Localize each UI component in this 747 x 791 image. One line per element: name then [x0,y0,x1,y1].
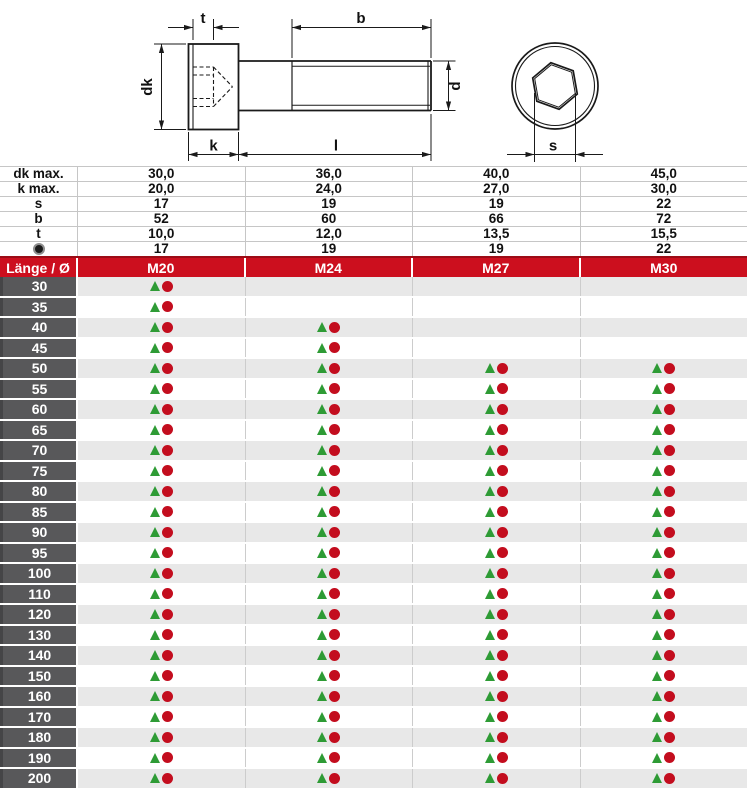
availability-cell [581,687,747,706]
spec-value: 19 [246,242,414,256]
stock-circle-icon [329,609,340,620]
availability-markers [317,568,340,579]
spec-value: 52 [78,212,246,226]
availability-markers [150,711,173,722]
table-row: 90 [0,523,747,542]
availability-cell [413,523,581,542]
availability-cell [78,728,246,747]
available-triangle-icon [150,732,160,742]
available-triangle-icon [652,363,662,373]
availability-markers [485,670,508,681]
spec-value: 19 [246,197,414,211]
available-triangle-icon [150,630,160,640]
availability-cell [581,605,747,624]
availability-markers [652,547,675,558]
availability-markers [150,322,173,333]
availability-markers [652,383,675,394]
stock-circle-icon [329,711,340,722]
availability-markers [150,629,173,640]
stock-circle-icon [664,691,675,702]
availability-markers [150,404,173,415]
availability-markers [317,547,340,558]
availability-markers [317,609,340,620]
available-triangle-icon [150,650,160,660]
stock-circle-icon [497,609,508,620]
availability-markers [485,363,508,374]
available-triangle-icon [317,384,327,394]
stock-circle-icon [497,547,508,558]
length-cell: 110 [0,585,78,604]
availability-cell [413,687,581,706]
stock-circle-icon [664,527,675,538]
stock-circle-icon [664,486,675,497]
table-row: 35 [0,298,747,317]
table-row: 45 [0,339,747,358]
table-row: 80 [0,482,747,501]
availability-markers [317,752,340,763]
available-triangle-icon [652,609,662,619]
availability-cell [581,359,747,378]
availability-markers [652,609,675,620]
availability-cell [78,318,246,337]
available-triangle-icon [652,466,662,476]
availability-markers [485,506,508,517]
availability-cell [581,298,747,317]
availability-cell [581,749,747,768]
table-row: 110 [0,585,747,604]
availability-markers [485,404,508,415]
available-triangle-icon [317,425,327,435]
availability-cell [413,339,581,358]
hex-socket-outline [533,63,578,110]
stock-circle-icon [664,383,675,394]
stock-circle-icon [329,773,340,784]
availability-markers [317,732,340,743]
availability-cell [581,462,747,481]
stock-circle-icon [329,363,340,374]
availability-markers [317,650,340,661]
availability-cell [78,523,246,542]
available-triangle-icon [317,609,327,619]
availability-markers [652,486,675,497]
spec-value: 19 [413,242,581,256]
stock-circle-icon [162,506,173,517]
stock-circle-icon [329,732,340,743]
stock-circle-icon [664,732,675,743]
availability-cell [78,769,246,788]
length-cell: 170 [0,708,78,727]
availability-cell [246,277,414,296]
availability-cell [581,441,747,460]
available-triangle-icon [317,732,327,742]
availability-markers [652,568,675,579]
stock-circle-icon [162,568,173,579]
availability-cell [581,564,747,583]
stock-circle-icon [162,752,173,763]
availability-cell [246,441,414,460]
spec-value: 17 [78,197,246,211]
spec-value: 24,0 [246,182,414,196]
availability-markers [150,752,173,763]
availability-markers [317,629,340,640]
stock-circle-icon [329,588,340,599]
available-triangle-icon [485,466,495,476]
stock-circle-icon [162,609,173,620]
spec-row: t10,012,013,515,5 [0,226,747,241]
availability-cell [413,462,581,481]
available-triangle-icon [652,404,662,414]
available-triangle-icon [485,404,495,414]
available-triangle-icon [317,445,327,455]
availability-cell [246,482,414,501]
spec-value: 60 [246,212,414,226]
availability-cell [581,728,747,747]
spec-value: 66 [413,212,581,226]
availability-cell [78,544,246,563]
availability-markers [485,752,508,763]
availability-cell [246,318,414,337]
available-triangle-icon [317,466,327,476]
stock-circle-icon [329,527,340,538]
table-row: 30 [0,277,747,296]
availability-cell [246,503,414,522]
available-triangle-icon [150,589,160,599]
stock-circle-icon [497,691,508,702]
availability-markers [652,711,675,722]
availability-markers [485,691,508,702]
spec-value: 19 [413,197,581,211]
available-triangle-icon [317,507,327,517]
availability-cell [78,503,246,522]
available-triangle-icon [485,630,495,640]
availability-cell [581,626,747,645]
available-triangle-icon [652,671,662,681]
availability-cell [581,708,747,727]
availability-cell [78,359,246,378]
spec-value: 22 [581,242,747,256]
availability-cell [246,359,414,378]
availability-cell [581,482,747,501]
availability-cell [78,646,246,665]
spec-value: 72 [581,212,747,226]
table-row: 160 [0,687,747,706]
available-triangle-icon [150,322,160,332]
spec-value: 10,0 [78,227,246,241]
table-row: 75 [0,462,747,481]
spec-value: 36,0 [246,167,414,181]
availability-cell [78,421,246,440]
availability-cell [78,277,246,296]
stock-circle-icon [497,650,508,661]
availability-cell [246,687,414,706]
availability-cell [581,380,747,399]
length-cell: 120 [0,605,78,624]
stock-circle-icon [329,670,340,681]
availability-markers [485,711,508,722]
dot-icon [33,243,45,255]
stock-circle-icon [162,711,173,722]
table-row: 140 [0,646,747,665]
available-triangle-icon [317,343,327,353]
spec-value: 17 [78,242,246,256]
available-triangle-icon [652,630,662,640]
dim-label-t: t [201,10,206,27]
spec-row-label: k max. [0,182,78,196]
available-triangle-icon [150,712,160,722]
availability-markers [150,609,173,620]
stock-circle-icon [497,773,508,784]
availability-cell [581,769,747,788]
available-triangle-icon [150,527,160,537]
available-triangle-icon [485,773,495,783]
availability-cell [413,708,581,727]
stock-circle-icon [329,445,340,456]
stock-circle-icon [162,322,173,333]
availability-markers [317,486,340,497]
available-triangle-icon [317,753,327,763]
availability-markers [652,404,675,415]
availability-markers [150,670,173,681]
available-triangle-icon [652,712,662,722]
availability-cell [246,667,414,686]
size-column-header: M30 [581,258,747,277]
availability-cell [246,728,414,747]
table-row: 200 [0,769,747,788]
length-cell: 30 [0,277,78,296]
stock-circle-icon [162,670,173,681]
length-cell: 35 [0,298,78,317]
length-cell: 65 [0,421,78,440]
availability-markers [150,301,173,312]
availability-markers [652,424,675,435]
availability-markers [317,404,340,415]
availability-cell [413,769,581,788]
table-row: 150 [0,667,747,686]
table-row: 60 [0,400,747,419]
availability-markers [485,465,508,476]
stock-circle-icon [497,445,508,456]
available-triangle-icon [317,671,327,681]
available-triangle-icon [150,753,160,763]
availability-markers [485,547,508,558]
availability-markers [150,281,173,292]
availability-cell [78,564,246,583]
stock-circle-icon [162,773,173,784]
available-triangle-icon [150,609,160,619]
length-cell: 160 [0,687,78,706]
available-triangle-icon [485,445,495,455]
availability-markers [150,465,173,476]
stock-circle-icon [664,465,675,476]
available-triangle-icon [485,568,495,578]
available-triangle-icon [317,363,327,373]
availability-cell [413,421,581,440]
length-rows: 3035404550556065707580859095100110120130… [0,277,747,788]
available-triangle-icon [150,671,160,681]
stock-circle-icon [162,650,173,661]
availability-cell [246,298,414,317]
stock-circle-icon [162,527,173,538]
availability-markers [485,629,508,640]
length-cell: 95 [0,544,78,563]
stock-circle-icon [497,752,508,763]
stock-circle-icon [329,547,340,558]
dim-label-dk: dk [139,78,156,96]
size-column-header: M27 [413,258,581,277]
available-triangle-icon [485,691,495,701]
stock-circle-icon [664,752,675,763]
spec-value: 30,0 [581,182,747,196]
availability-markers [652,506,675,517]
dim-label-b: b [356,10,365,27]
stock-circle-icon [329,650,340,661]
size-column-header: M20 [78,258,246,277]
availability-cell [246,749,414,768]
availability-markers [317,670,340,681]
dim-label-d: d [447,81,464,90]
stock-circle-icon [329,568,340,579]
spec-row-label: t [0,227,78,241]
available-triangle-icon [485,732,495,742]
availability-markers [485,383,508,394]
availability-markers [485,424,508,435]
availability-markers [150,691,173,702]
availability-cell [581,544,747,563]
stock-circle-icon [497,711,508,722]
availability-markers [150,650,173,661]
available-triangle-icon [317,712,327,722]
length-diameter-header: Länge / Ø [0,258,78,277]
available-triangle-icon [150,466,160,476]
available-triangle-icon [150,281,160,291]
available-triangle-icon [485,609,495,619]
availability-markers [317,773,340,784]
availability-markers [150,732,173,743]
stock-circle-icon [162,732,173,743]
availability-cell [246,564,414,583]
availability-markers [150,342,173,353]
stock-circle-icon [329,424,340,435]
available-triangle-icon [150,445,160,455]
available-triangle-icon [317,630,327,640]
available-triangle-icon [150,691,160,701]
stock-circle-icon [664,363,675,374]
table-row: 170 [0,708,747,727]
availability-markers [652,363,675,374]
available-triangle-icon [317,691,327,701]
availability-markers [150,547,173,558]
hex-socket-hidden-lines [193,67,233,107]
available-triangle-icon [652,650,662,660]
available-triangle-icon [317,568,327,578]
availability-cell [78,708,246,727]
availability-cell [413,749,581,768]
stock-circle-icon [497,732,508,743]
stock-circle-icon [497,588,508,599]
stock-circle-icon [329,404,340,415]
availability-markers [317,527,340,538]
availability-cell [581,523,747,542]
spec-row-label: dk max. [0,167,78,181]
available-triangle-icon [317,322,327,332]
availability-markers [150,527,173,538]
available-triangle-icon [150,404,160,414]
table-row: 50 [0,359,747,378]
spec-row: dk max.30,036,040,045,0 [0,166,747,181]
spec-value: 45,0 [581,167,747,181]
spec-row-label: b [0,212,78,226]
availability-cell [413,277,581,296]
stock-circle-icon [329,486,340,497]
spec-row: b52606672 [0,211,747,226]
available-triangle-icon [652,548,662,558]
stock-circle-icon [162,363,173,374]
available-triangle-icon [150,548,160,558]
available-triangle-icon [485,425,495,435]
availability-cell [78,482,246,501]
availability-cell [581,339,747,358]
available-triangle-icon [150,773,160,783]
stock-circle-icon [162,301,173,312]
availability-markers [485,527,508,538]
available-triangle-icon [317,486,327,496]
availability-cell [246,339,414,358]
availability-markers [317,465,340,476]
available-triangle-icon [485,527,495,537]
available-triangle-icon [317,404,327,414]
length-cell: 80 [0,482,78,501]
stock-circle-icon [329,506,340,517]
availability-cell [413,482,581,501]
available-triangle-icon [652,773,662,783]
stock-circle-icon [162,547,173,558]
stock-circle-icon [664,773,675,784]
available-triangle-icon [150,486,160,496]
available-triangle-icon [485,712,495,722]
stock-circle-icon [162,383,173,394]
stock-circle-icon [162,281,173,292]
table-row: 180 [0,728,747,747]
availability-cell [78,585,246,604]
availability-cell [413,359,581,378]
stock-circle-icon [664,424,675,435]
availability-cell [581,503,747,522]
stock-circle-icon [664,445,675,456]
length-cell: 130 [0,626,78,645]
stock-circle-icon [329,465,340,476]
stock-circle-icon [162,691,173,702]
stock-circle-icon [664,650,675,661]
table-row: 85 [0,503,747,522]
stock-circle-icon [664,506,675,517]
length-cell: 50 [0,359,78,378]
stock-circle-icon [497,506,508,517]
available-triangle-icon [150,343,160,353]
available-triangle-icon [485,507,495,517]
available-triangle-icon [150,363,160,373]
size-column-header: M24 [246,258,414,277]
length-cell: 85 [0,503,78,522]
availability-markers [317,506,340,517]
availability-cell [413,544,581,563]
available-triangle-icon [150,425,160,435]
availability-cell [78,339,246,358]
availability-markers [317,588,340,599]
length-cell: 190 [0,749,78,768]
spec-value: 30,0 [78,167,246,181]
stock-circle-icon [497,404,508,415]
availability-cell [246,544,414,563]
